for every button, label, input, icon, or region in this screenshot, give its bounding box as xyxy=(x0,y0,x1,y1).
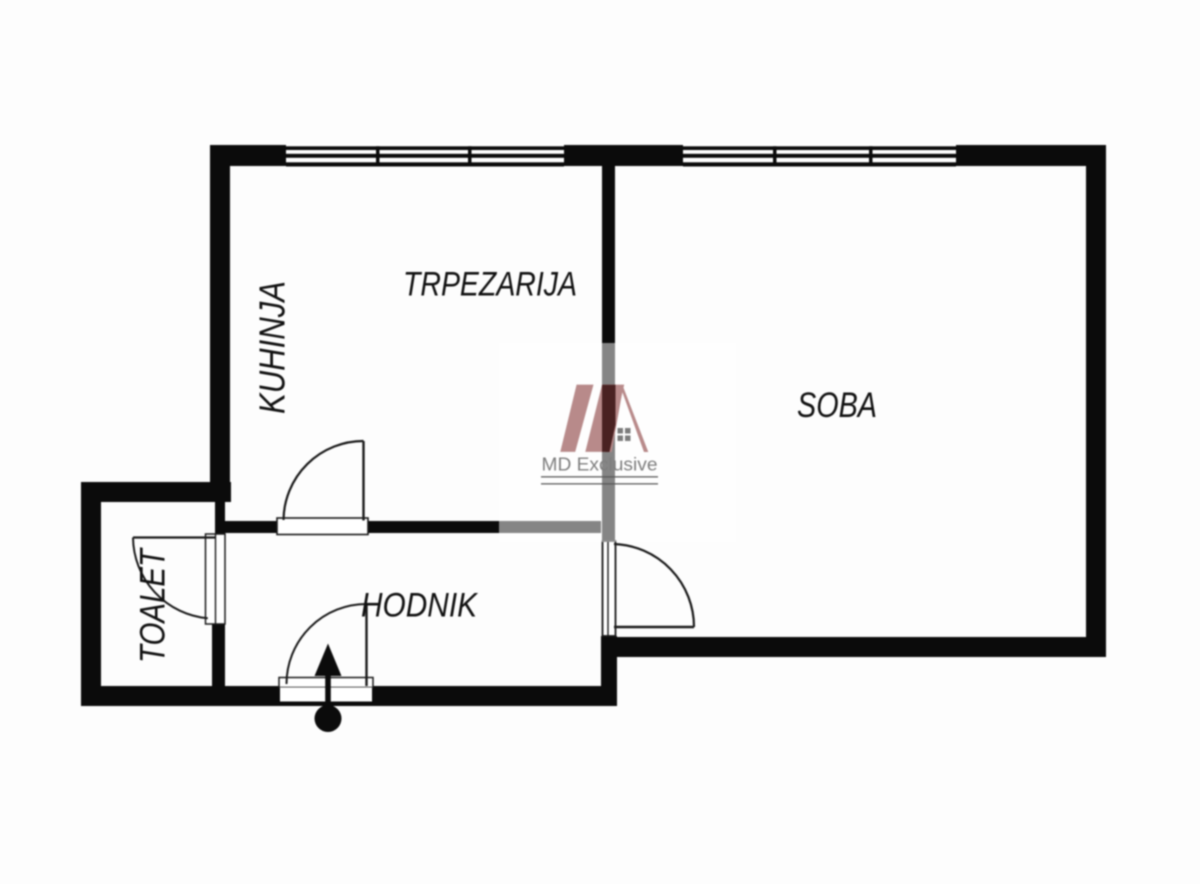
svg-text:TOALET: TOALET xyxy=(134,547,173,663)
svg-text:TRPEZARIJA: TRPEZARIJA xyxy=(403,266,577,304)
svg-text:KUHINJA: KUHINJA xyxy=(252,281,293,414)
svg-text:HODNIK: HODNIK xyxy=(361,587,478,625)
svg-text:SOBA: SOBA xyxy=(797,386,877,425)
svg-text:MD Exclusive: MD Exclusive xyxy=(542,454,658,474)
